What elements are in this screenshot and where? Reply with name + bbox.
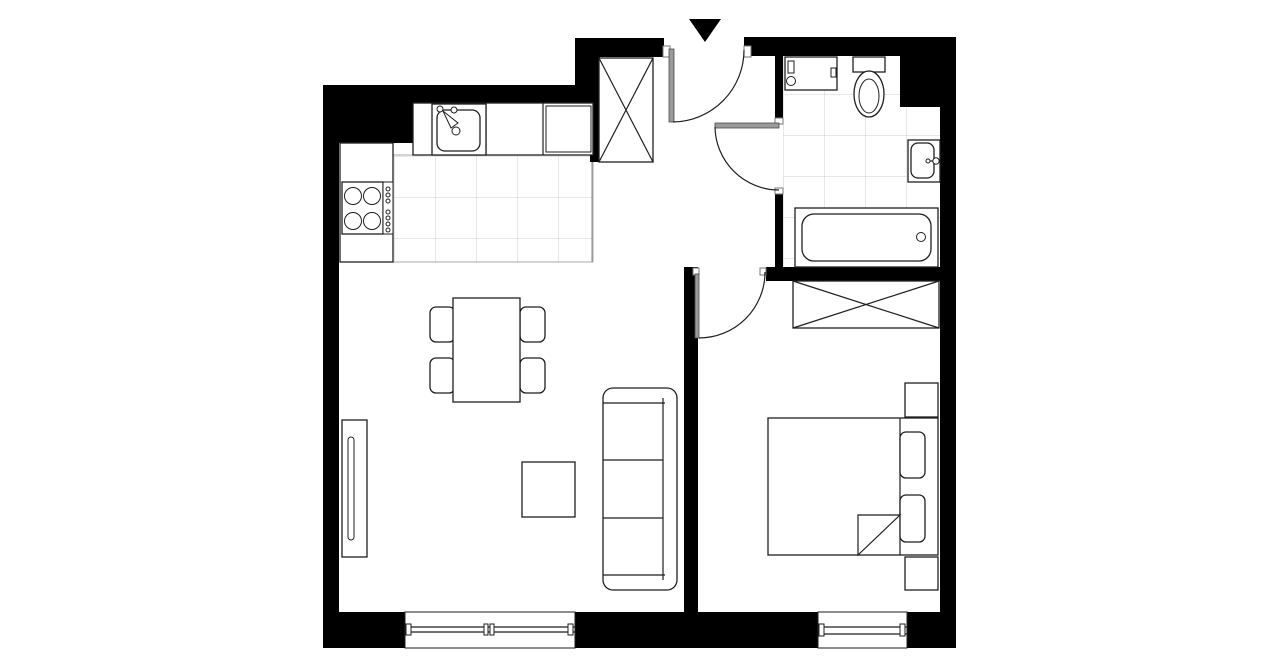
pillow-1 [900, 432, 925, 478]
bedroom-window [818, 612, 907, 648]
bathroom-bedroom-wall [766, 267, 940, 281]
structural-block-kitchen-corner [323, 85, 413, 143]
washing-machine-drawer [788, 61, 794, 73]
floor-plan-canvas [0, 0, 1280, 667]
bathtub [795, 208, 938, 267]
washing-machine-door [787, 77, 796, 86]
bedroom-door-swing-arc [699, 272, 765, 338]
washbasin-faucet [933, 158, 939, 164]
double-bed [768, 418, 938, 555]
hall-kitchen-wall-upper [575, 38, 600, 107]
washbasin [908, 140, 940, 182]
chair-right-1 [520, 307, 545, 342]
living-window-mullion-center-2 [490, 624, 494, 635]
bedroom-window-opening [818, 612, 907, 648]
bathroom-door-leaf [715, 123, 779, 128]
entrance-door-jamb-right [744, 46, 751, 57]
kitchen-appliance-unit [546, 106, 591, 152]
burner-2 [364, 188, 381, 205]
kitchen-floor-tiles [392, 155, 593, 262]
washing-machine [785, 57, 837, 90]
bathtub-drain [917, 233, 926, 242]
bathroom-door [715, 118, 783, 194]
kitchen-sink [432, 104, 486, 155]
bedroom [768, 281, 939, 648]
sink-drain [452, 127, 460, 135]
chair-left-1 [430, 307, 455, 342]
living-window-mullion-center-1 [484, 624, 488, 635]
radiator-fin [348, 437, 354, 540]
stove [342, 182, 393, 234]
entrance-door-swing-arc [673, 50, 744, 122]
living-window-mullion-right [568, 624, 573, 635]
nightstand-bottom [905, 557, 938, 590]
burner-4 [364, 213, 381, 230]
sink-faucet-base [437, 106, 443, 112]
bedroom-door-leaf [695, 274, 699, 338]
bedroom-wardrobe [793, 281, 939, 328]
bedroom-window-mullion-right [900, 624, 905, 636]
living-room-window [405, 612, 575, 648]
nightstand-top [905, 383, 938, 417]
toilet-tank [853, 57, 885, 72]
living-room [342, 298, 677, 648]
floor-plan-drawing [0, 0, 1280, 667]
bedroom-door [693, 268, 766, 338]
washing-machine-knob [831, 68, 836, 77]
bedroom-window-mullion-left [819, 624, 824, 636]
burner-1 [345, 188, 362, 205]
hallway-closet [599, 58, 653, 162]
bathroom-door-jamb-bottom [775, 188, 783, 194]
dining-table [453, 298, 520, 402]
outer-wall-left [323, 85, 339, 648]
kitchen-tile-area [392, 155, 593, 262]
sink-faucet-knob [451, 107, 457, 113]
sofa-outline [603, 388, 677, 590]
pillow-2 [900, 495, 925, 542]
living-window-mullion-left [406, 624, 411, 635]
chair-right-2 [520, 358, 545, 393]
coffee-table [522, 462, 575, 517]
chair-left-2 [430, 358, 455, 393]
toilet [853, 57, 885, 117]
washbasin-drain [926, 159, 930, 163]
bathroom-door-swing-arc [715, 127, 779, 190]
entrance-marker-icon [689, 19, 721, 42]
outer-wall-right [940, 37, 956, 648]
structural-block-bathroom-corner [900, 53, 940, 107]
bathroom-hall-wall-upper [775, 56, 783, 124]
radiator [342, 420, 367, 557]
entrance-door-leaf [669, 49, 674, 122]
sofa [603, 388, 677, 590]
entrance [663, 19, 751, 122]
dining-set [430, 298, 545, 402]
burner-3 [345, 213, 362, 230]
bathtub-inner [802, 214, 931, 261]
toilet-bowl-inner [859, 79, 879, 113]
